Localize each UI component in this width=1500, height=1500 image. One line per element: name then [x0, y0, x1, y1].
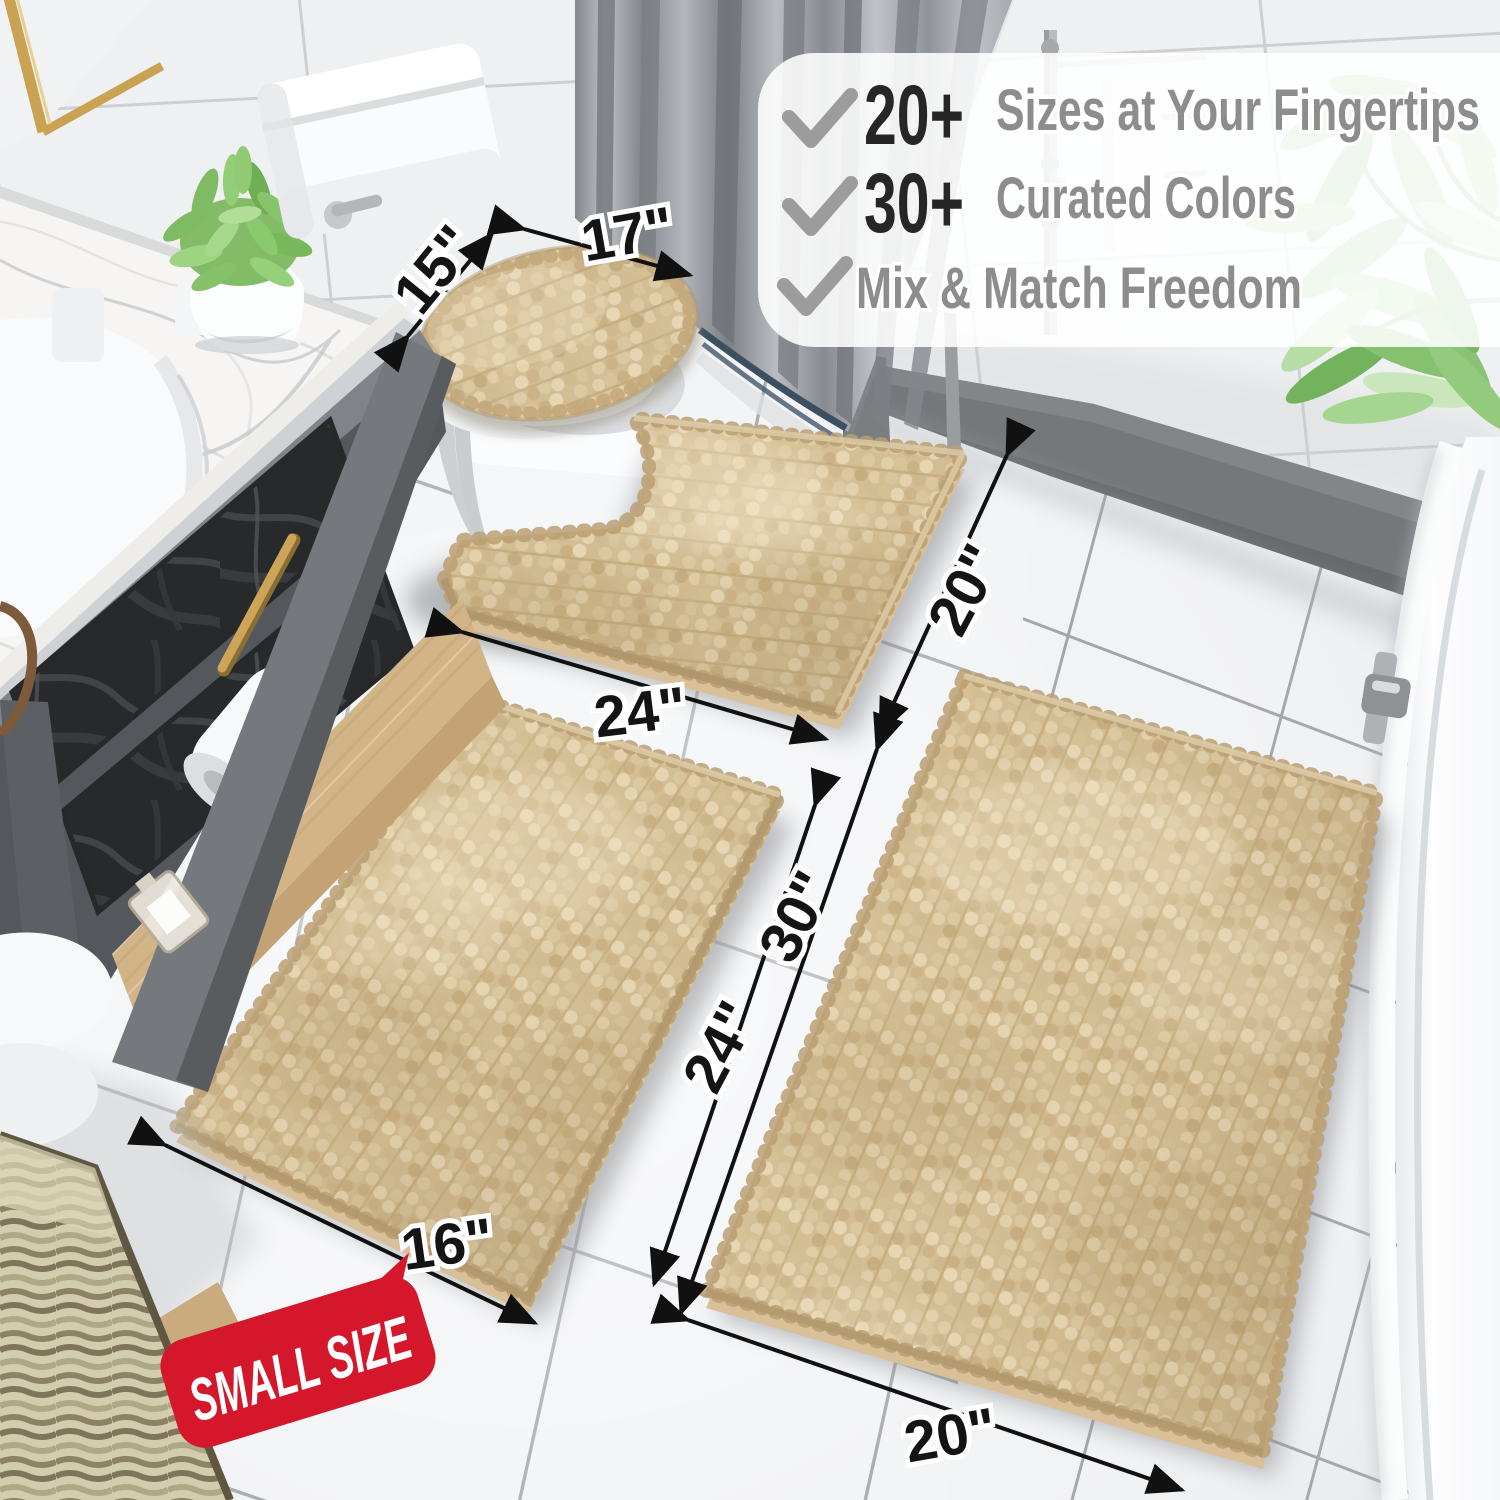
svg-text:Mix & Match Freedom: Mix & Match Freedom: [856, 256, 1302, 321]
svg-text:24": 24": [591, 675, 690, 751]
svg-text:Curated Colors: Curated Colors: [996, 166, 1296, 231]
svg-text:Sizes at Your Fingertips: Sizes at Your Fingertips: [996, 78, 1480, 143]
svg-text:30+: 30+: [864, 156, 964, 250]
svg-text:20+: 20+: [864, 68, 964, 162]
svg-text:16": 16": [397, 1206, 497, 1283]
